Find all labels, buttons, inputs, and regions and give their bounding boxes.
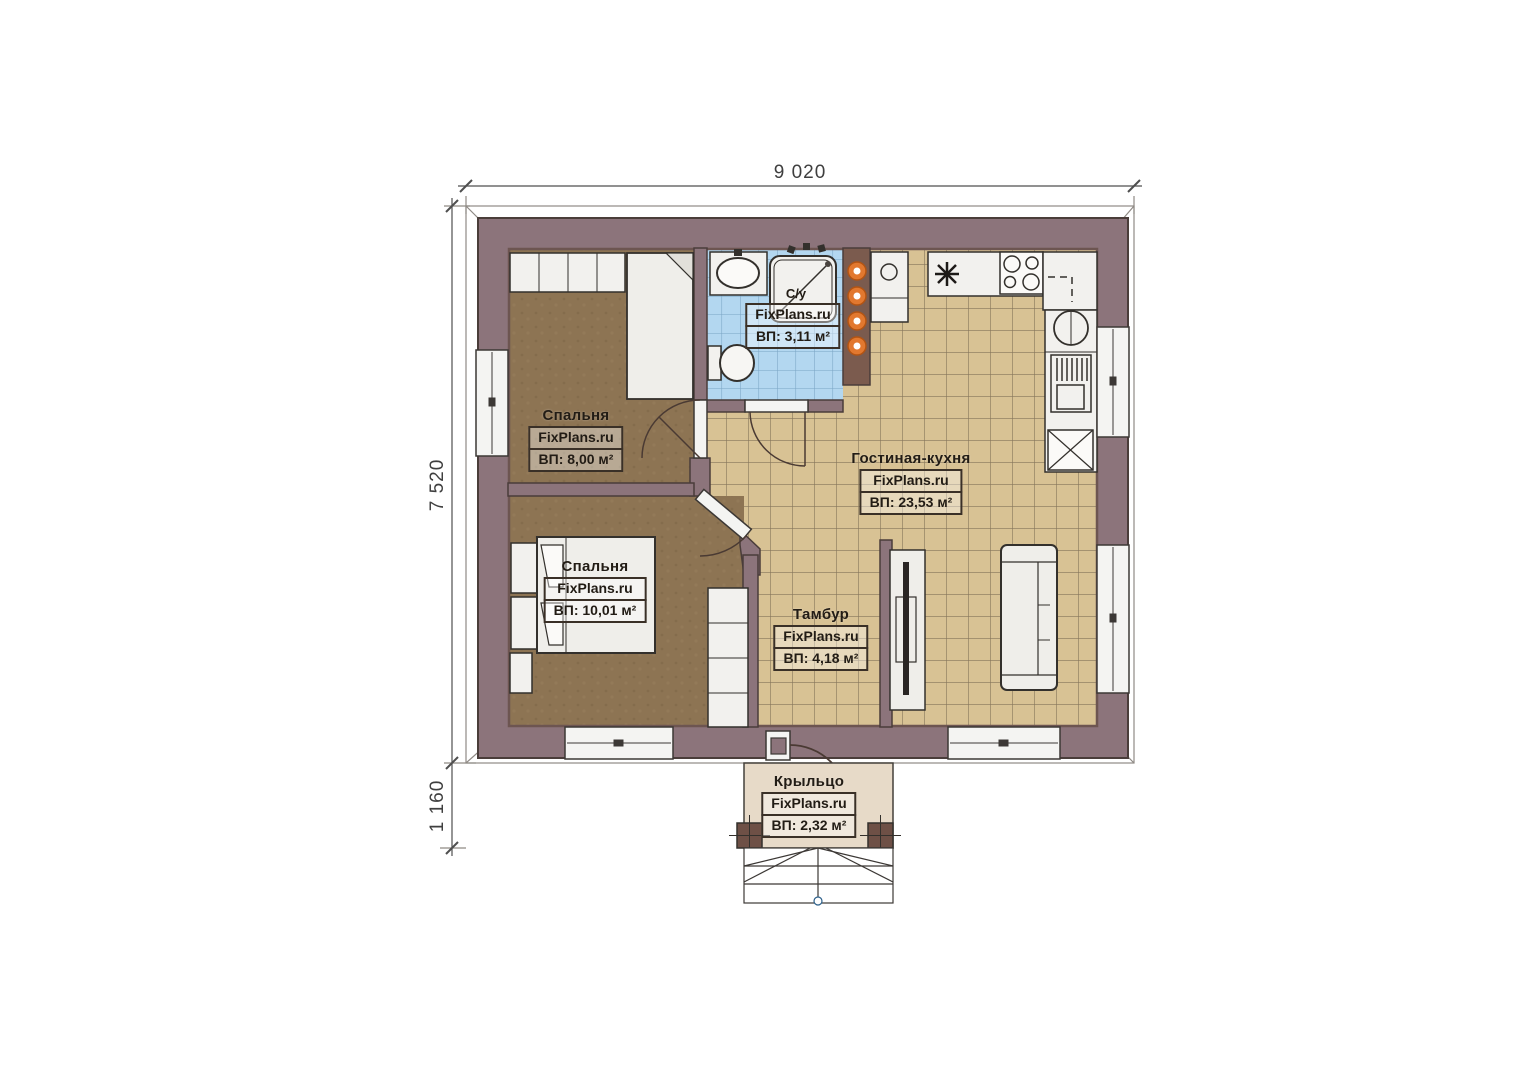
label-boxes: FixPlans.ru ВП: 2,32 м² bbox=[761, 792, 856, 838]
room-label-bedroom-2: Спальня FixPlans.ru ВП: 10,01 м² bbox=[544, 558, 647, 623]
floor-plan-canvas: 9 020 7 520 1 160 Спальня FixPlans.ru ВП… bbox=[0, 0, 1528, 1080]
toilet-icon bbox=[708, 345, 754, 381]
room-name-bedroom-1: Спальня bbox=[528, 407, 623, 424]
nightstand bbox=[511, 597, 537, 649]
window-bottom-right bbox=[948, 727, 1060, 759]
watermark-box: FixPlans.ru bbox=[745, 303, 840, 327]
room-name-bathroom: С/у bbox=[786, 286, 806, 301]
room-label-tambour: Тамбур FixPlans.ru ВП: 4,18 м² bbox=[773, 606, 868, 671]
area-box: ВП: 4,18 м² bbox=[773, 647, 868, 671]
nightstand bbox=[511, 543, 537, 593]
tv-stand bbox=[890, 550, 925, 710]
sink-icon bbox=[710, 249, 767, 295]
watermark-box: FixPlans.ru bbox=[761, 792, 856, 816]
dimension-top-value: 9 020 bbox=[774, 162, 827, 183]
steps-icon bbox=[744, 848, 893, 905]
shelf bbox=[510, 653, 532, 693]
label-boxes: FixPlans.ru ВП: 23,53 м² bbox=[860, 469, 963, 515]
window-left bbox=[476, 350, 508, 456]
window-bottom-left bbox=[565, 727, 673, 759]
area-box: ВП: 10,01 м² bbox=[544, 599, 647, 623]
window-right-top bbox=[1097, 327, 1129, 437]
room-label-porch: Крыльцо FixPlans.ru ВП: 2,32 м² bbox=[761, 773, 856, 838]
corner-cabinet bbox=[1043, 252, 1097, 310]
kitchen-right-column bbox=[1045, 310, 1097, 472]
partition-bath-bottom-left bbox=[706, 400, 745, 412]
partition-bath-bottom-right bbox=[808, 400, 843, 412]
window-right-bottom bbox=[1097, 545, 1129, 693]
vent-icon bbox=[935, 262, 959, 286]
dimension-porch-value: 1 160 bbox=[427, 780, 448, 833]
kitchen-cabinet bbox=[871, 252, 908, 322]
sofa-icon bbox=[1001, 545, 1057, 690]
area-box: ВП: 23,53 м² bbox=[860, 491, 963, 515]
watermark-box: FixPlans.ru bbox=[773, 625, 868, 649]
label-boxes: FixPlans.ru ВП: 8,00 м² bbox=[528, 426, 623, 472]
label-boxes: FixPlans.ru ВП: 4,18 м² bbox=[773, 625, 868, 671]
watermark-box: FixPlans.ru bbox=[544, 577, 647, 601]
stove-icon bbox=[1000, 252, 1043, 294]
room-label-living: Гостиная-кухня FixPlans.ru ВП: 23,53 м² bbox=[851, 450, 970, 515]
area-box: ВП: 3,11 м² bbox=[745, 325, 840, 349]
room-label-bathroom: FixPlans.ru ВП: 3,11 м² bbox=[745, 303, 840, 349]
bed-icon bbox=[627, 253, 693, 399]
watermark-box: FixPlans.ru bbox=[528, 426, 623, 450]
tv-panel-icon bbox=[903, 562, 909, 695]
fridge-icon bbox=[1048, 430, 1093, 470]
room-name-living: Гостиная-кухня bbox=[851, 450, 970, 467]
watermark-box: FixPlans.ru bbox=[860, 469, 963, 493]
floor-plan-drawing: 9 020 7 520 1 160 bbox=[0, 0, 1528, 1080]
label-boxes: FixPlans.ru ВП: 10,01 м² bbox=[544, 577, 647, 623]
room-label-bedroom-1: Спальня FixPlans.ru ВП: 8,00 м² bbox=[528, 407, 623, 472]
room-name-bedroom-2: Спальня bbox=[544, 558, 647, 575]
dimension-left: 7 520 1 160 bbox=[427, 198, 476, 856]
area-box: ВП: 8,00 м² bbox=[528, 448, 623, 472]
room-name-porch: Крыльцо bbox=[761, 773, 856, 790]
dimension-left-value: 7 520 bbox=[427, 459, 448, 512]
area-box: ВП: 2,32 м² bbox=[761, 814, 856, 838]
wardrobe bbox=[708, 588, 748, 727]
label-boxes: FixPlans.ru ВП: 3,11 м² bbox=[745, 303, 840, 349]
partition-bedrooms bbox=[508, 483, 694, 496]
room-name-tambour: Тамбур bbox=[773, 606, 868, 623]
wardrobe bbox=[510, 253, 625, 292]
bath-kitchen-divider bbox=[843, 248, 870, 385]
partition-bedroom1-bath bbox=[694, 248, 707, 400]
